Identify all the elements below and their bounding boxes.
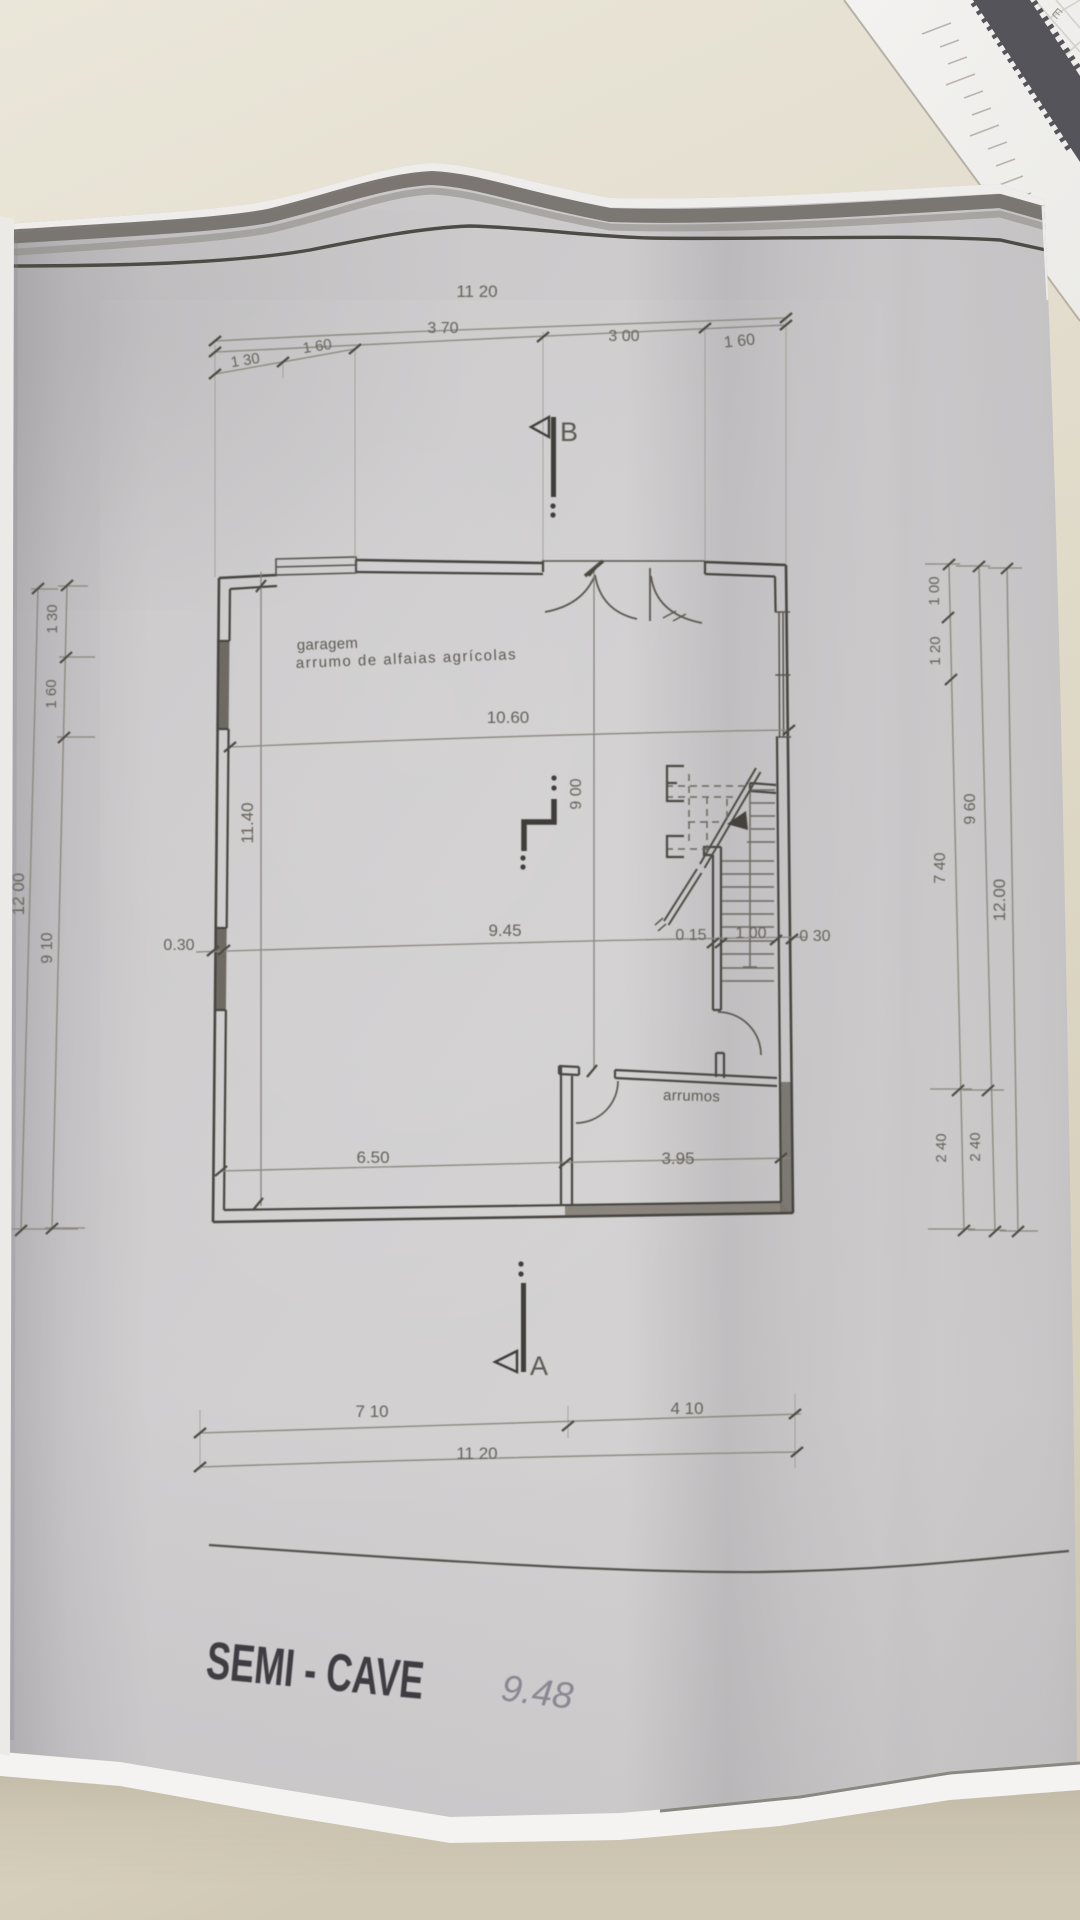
svg-text:7 40: 7 40 — [932, 852, 949, 883]
svg-text:4 10: 4 10 — [670, 1399, 703, 1418]
svg-text:3 00: 3 00 — [608, 328, 639, 345]
svg-text:11 20: 11 20 — [456, 282, 497, 301]
svg-text:1 60: 1 60 — [43, 679, 60, 708]
svg-text:9.45: 9.45 — [488, 921, 521, 940]
svg-text:1 00: 1 00 — [735, 925, 766, 942]
svg-text:11.40: 11.40 — [238, 802, 257, 843]
svg-text:2 40: 2 40 — [967, 1132, 984, 1161]
svg-text:11 20: 11 20 — [456, 1444, 497, 1463]
svg-text:A: A — [530, 1351, 548, 1381]
svg-text:1 20: 1 20 — [927, 636, 944, 665]
svg-text:9 00: 9 00 — [568, 778, 585, 809]
svg-text:3.95: 3.95 — [661, 1149, 694, 1168]
svg-text:7 10: 7 10 — [355, 1402, 388, 1421]
svg-text:2 40: 2 40 — [933, 1133, 950, 1162]
svg-text:arrumos: arrumos — [663, 1087, 721, 1105]
svg-text:9 60: 9 60 — [962, 793, 979, 824]
svg-text:3 70: 3 70 — [427, 320, 458, 337]
svg-text:garagem: garagem — [297, 635, 359, 654]
svg-text:1 60: 1 60 — [723, 331, 756, 351]
svg-text:6.50: 6.50 — [356, 1148, 389, 1167]
svg-text:12.00: 12.00 — [990, 879, 1009, 922]
svg-text:1 30: 1 30 — [44, 604, 61, 633]
svg-text:0 15: 0 15 — [675, 927, 706, 944]
svg-text:1 00: 1 00 — [926, 576, 943, 605]
svg-text:B: B — [560, 417, 578, 447]
svg-text:10.60: 10.60 — [487, 708, 530, 727]
svg-text:9.48: 9.48 — [499, 1667, 576, 1717]
svg-text:0 30: 0 30 — [799, 928, 830, 945]
svg-text:0.30: 0.30 — [163, 937, 194, 954]
svg-text:9 10: 9 10 — [39, 932, 56, 963]
